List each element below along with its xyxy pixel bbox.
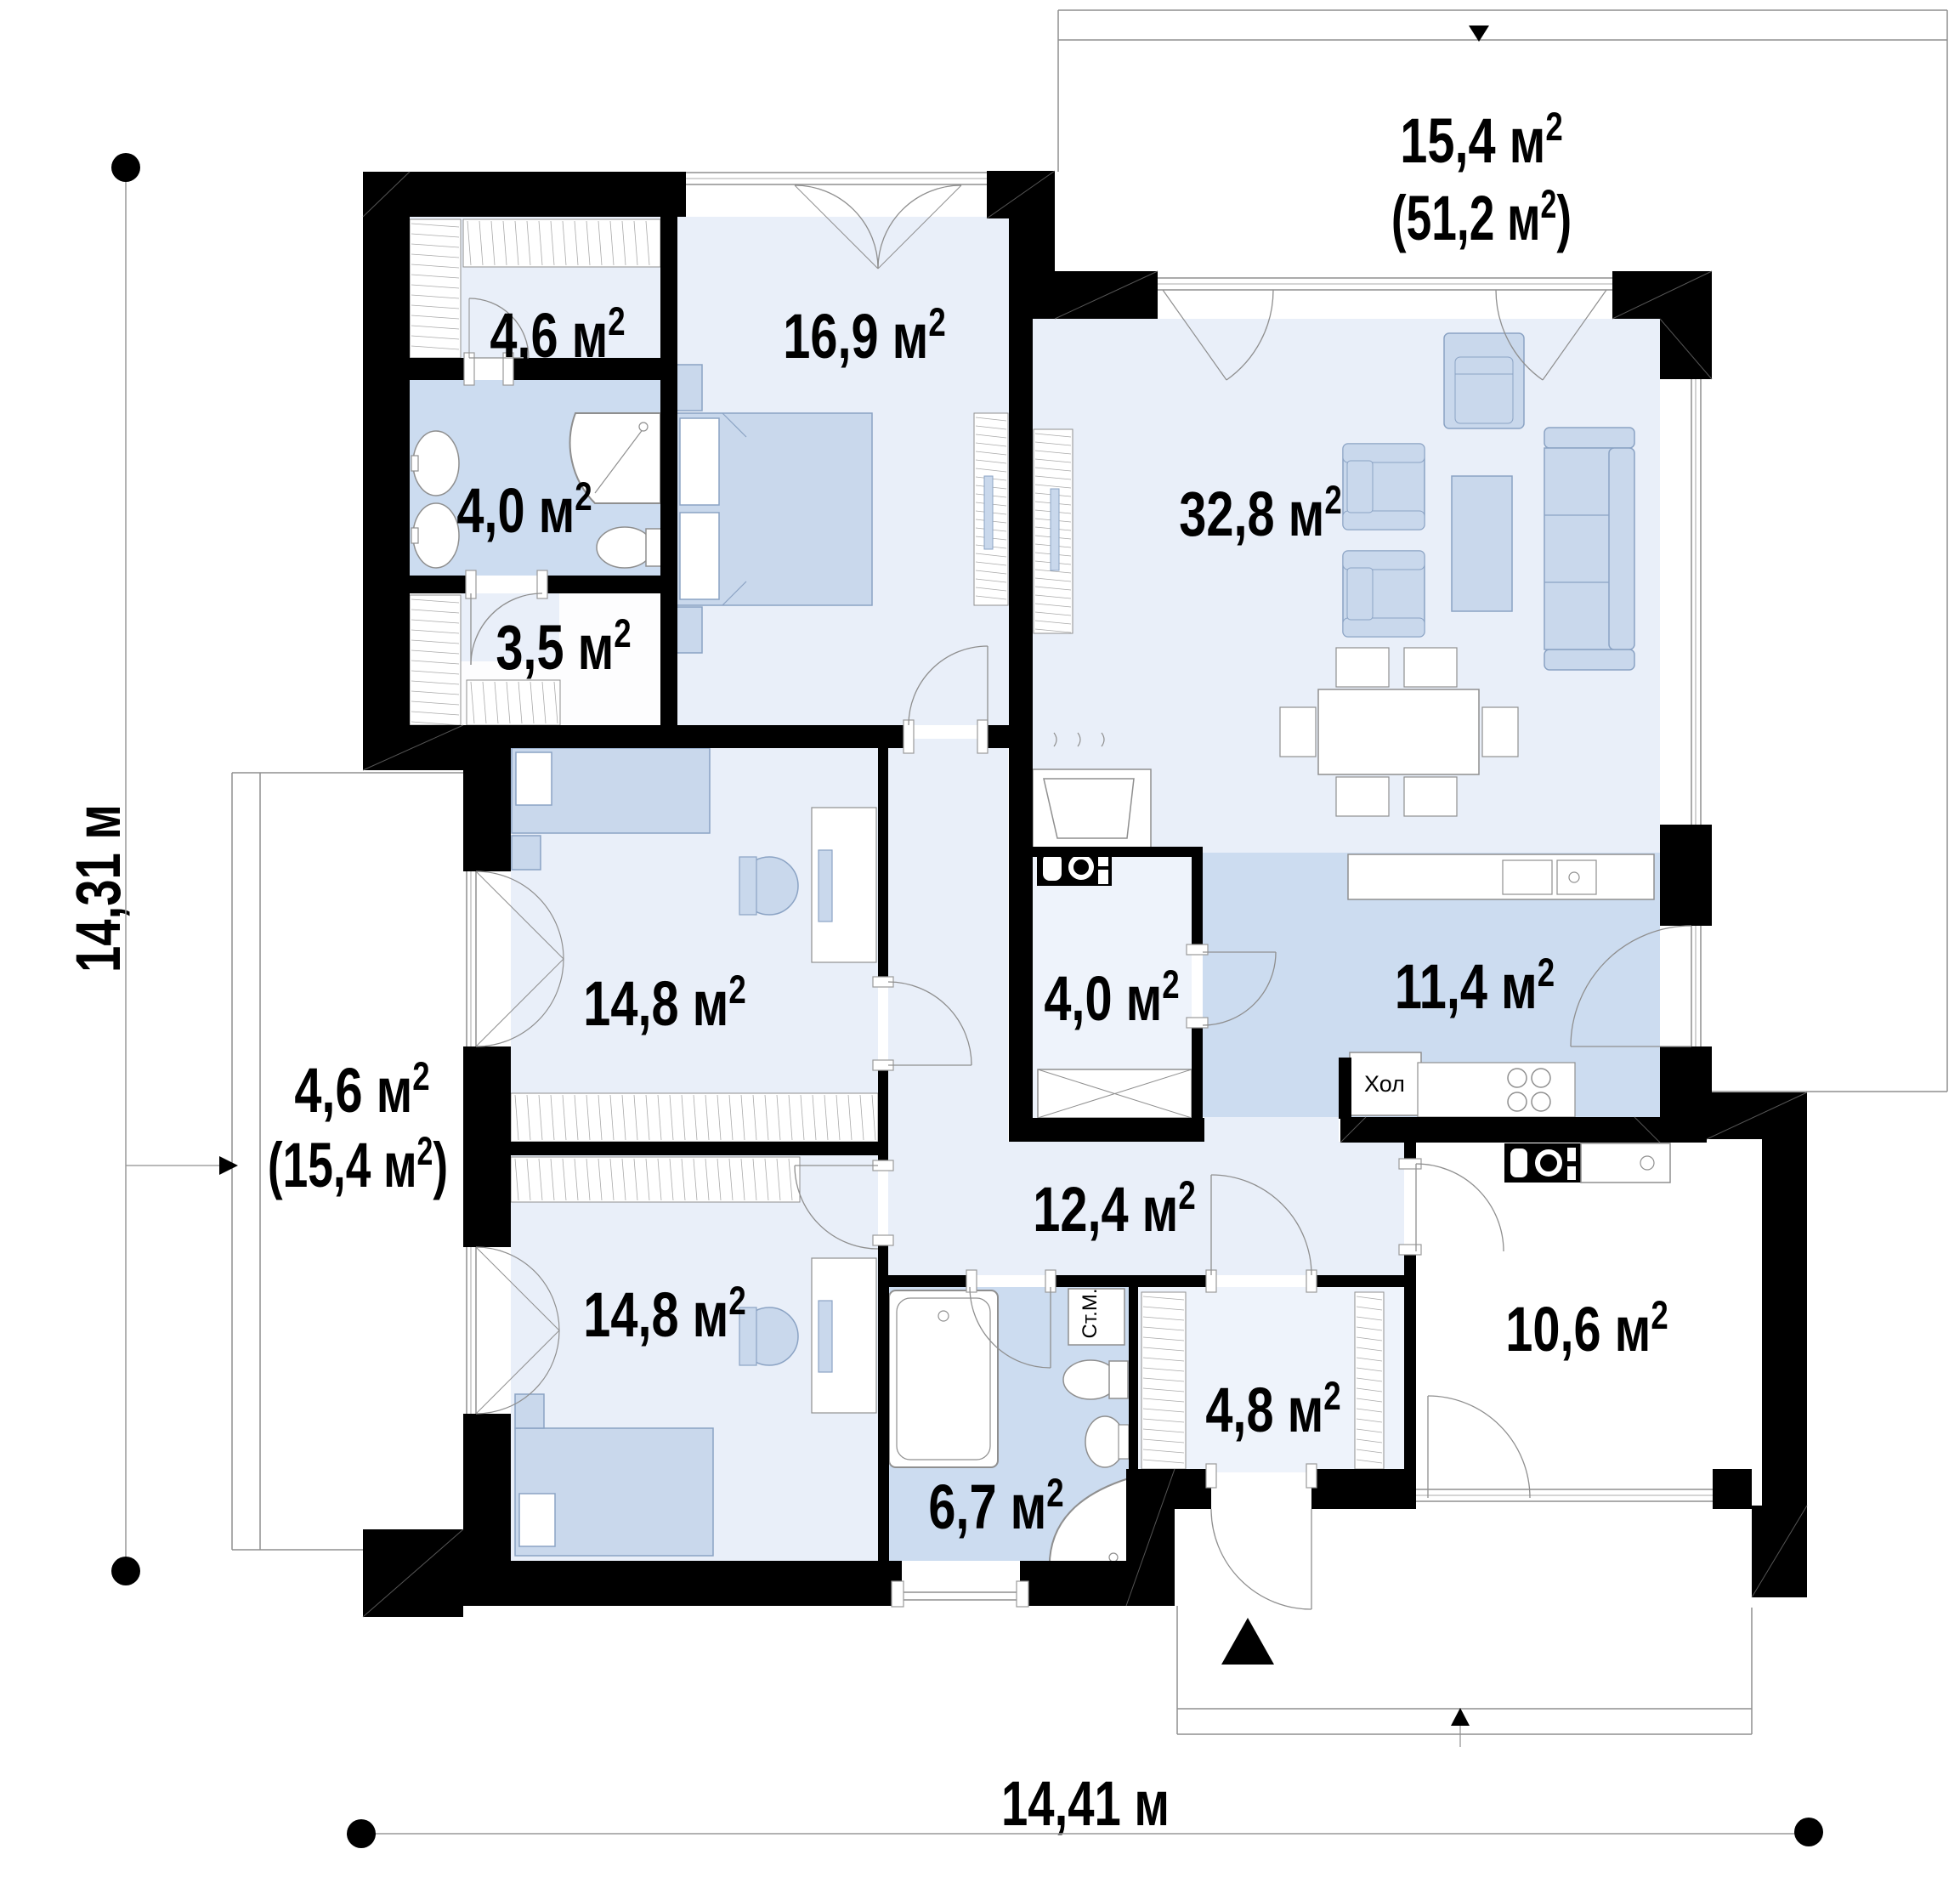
svg-text:15,4 м2: 15,4 м2 (1400, 105, 1562, 177)
svg-text:14,41 м: 14,41 м (1001, 1769, 1170, 1839)
svg-text:12,4 м2: 12,4 м2 (1033, 1173, 1195, 1245)
svg-text:3,5 м2: 3,5 м2 (496, 611, 631, 683)
svg-text:14,8 м2: 14,8 м2 (583, 967, 745, 1040)
svg-text:14,8 м2: 14,8 м2 (583, 1279, 745, 1351)
svg-text:11,4 м2: 11,4 м2 (1395, 950, 1555, 1023)
svg-text:10,6 м2: 10,6 м2 (1505, 1293, 1668, 1365)
svg-text:Хол: Хол (1364, 1071, 1405, 1097)
svg-text:4,0 м2: 4,0 м2 (1044, 962, 1179, 1035)
svg-text:32,8 м2: 32,8 м2 (1179, 478, 1341, 550)
svg-text:4,6 м2: 4,6 м2 (490, 299, 625, 371)
svg-text:16,9 м2: 16,9 м2 (783, 300, 945, 372)
svg-text:6,7 м2: 6,7 м2 (928, 1471, 1063, 1543)
svg-text:14,31 м: 14,31 м (64, 804, 133, 973)
svg-text:Ст.М.: Ст.М. (1079, 1289, 1102, 1339)
svg-text:4,8 м2: 4,8 м2 (1205, 1374, 1340, 1446)
svg-text:4,0 м2: 4,0 м2 (456, 474, 592, 547)
svg-text:4,6 м2: 4,6 м2 (294, 1054, 429, 1126)
